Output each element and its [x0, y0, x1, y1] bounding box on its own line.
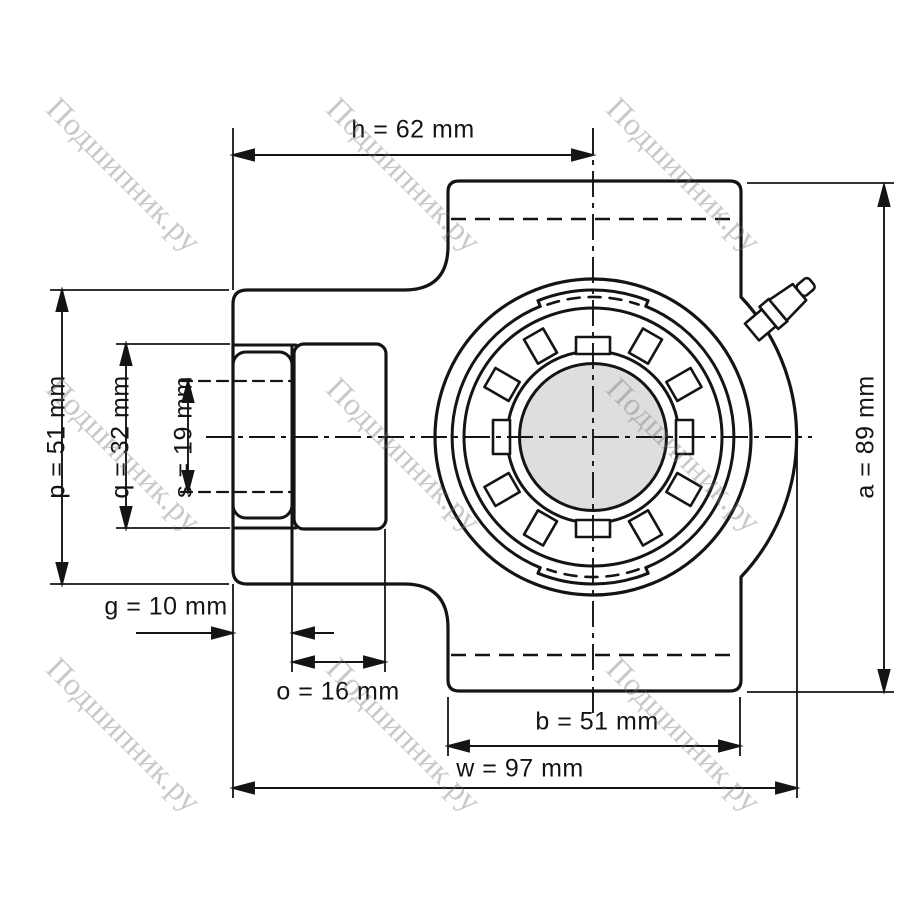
dim-label-s: s = 19 mm	[170, 376, 199, 498]
dim-label-g: g = 10 mm	[104, 593, 227, 622]
dim-label-q: q = 32 mm	[107, 375, 136, 498]
dim-label-a: a = 89 mm	[852, 375, 881, 498]
guide-slot-details	[181, 344, 386, 584]
dim-label-p: p = 51 mm	[43, 375, 72, 498]
dim-label-o: o = 16 mm	[276, 678, 399, 707]
dim-label-h: h = 62 mm	[351, 116, 474, 145]
dim-label-w: w = 97 mm	[456, 755, 583, 784]
drawing-page: h = 62 mm p = 51 mm q = 32 mm s = 19 mm …	[0, 0, 900, 900]
dim-label-b: b = 51 mm	[535, 708, 658, 737]
grease-fitting-icon	[743, 271, 821, 343]
